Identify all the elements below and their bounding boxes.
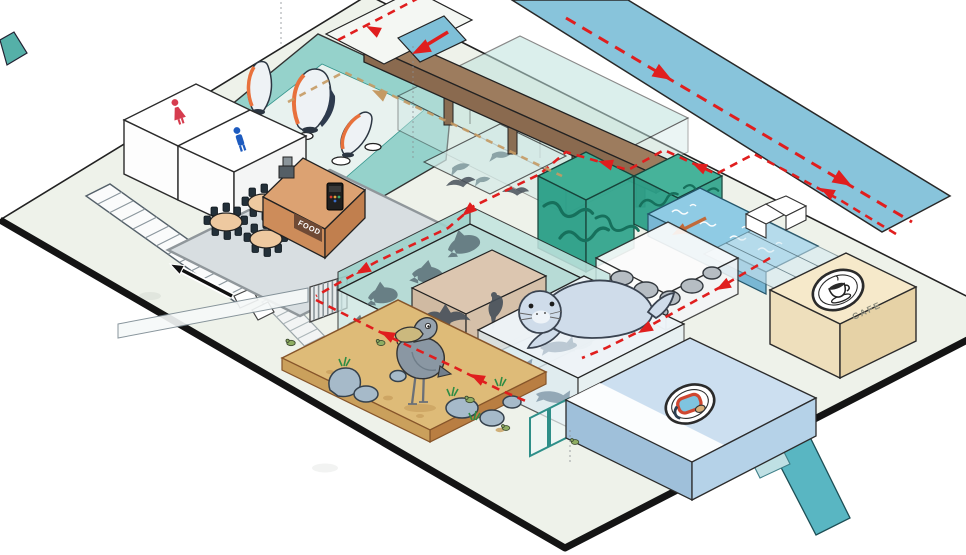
seal-muzzle bbox=[532, 311, 550, 324]
floor-smudge bbox=[312, 464, 338, 473]
aquarium-floor-map: FOOD bbox=[0, 0, 966, 555]
upper-level-fragment bbox=[0, 32, 27, 65]
floor-smudge bbox=[139, 292, 161, 300]
drink-machine[interactable] bbox=[327, 183, 343, 210]
isometric-map-canvas: FOOD bbox=[0, 0, 966, 555]
